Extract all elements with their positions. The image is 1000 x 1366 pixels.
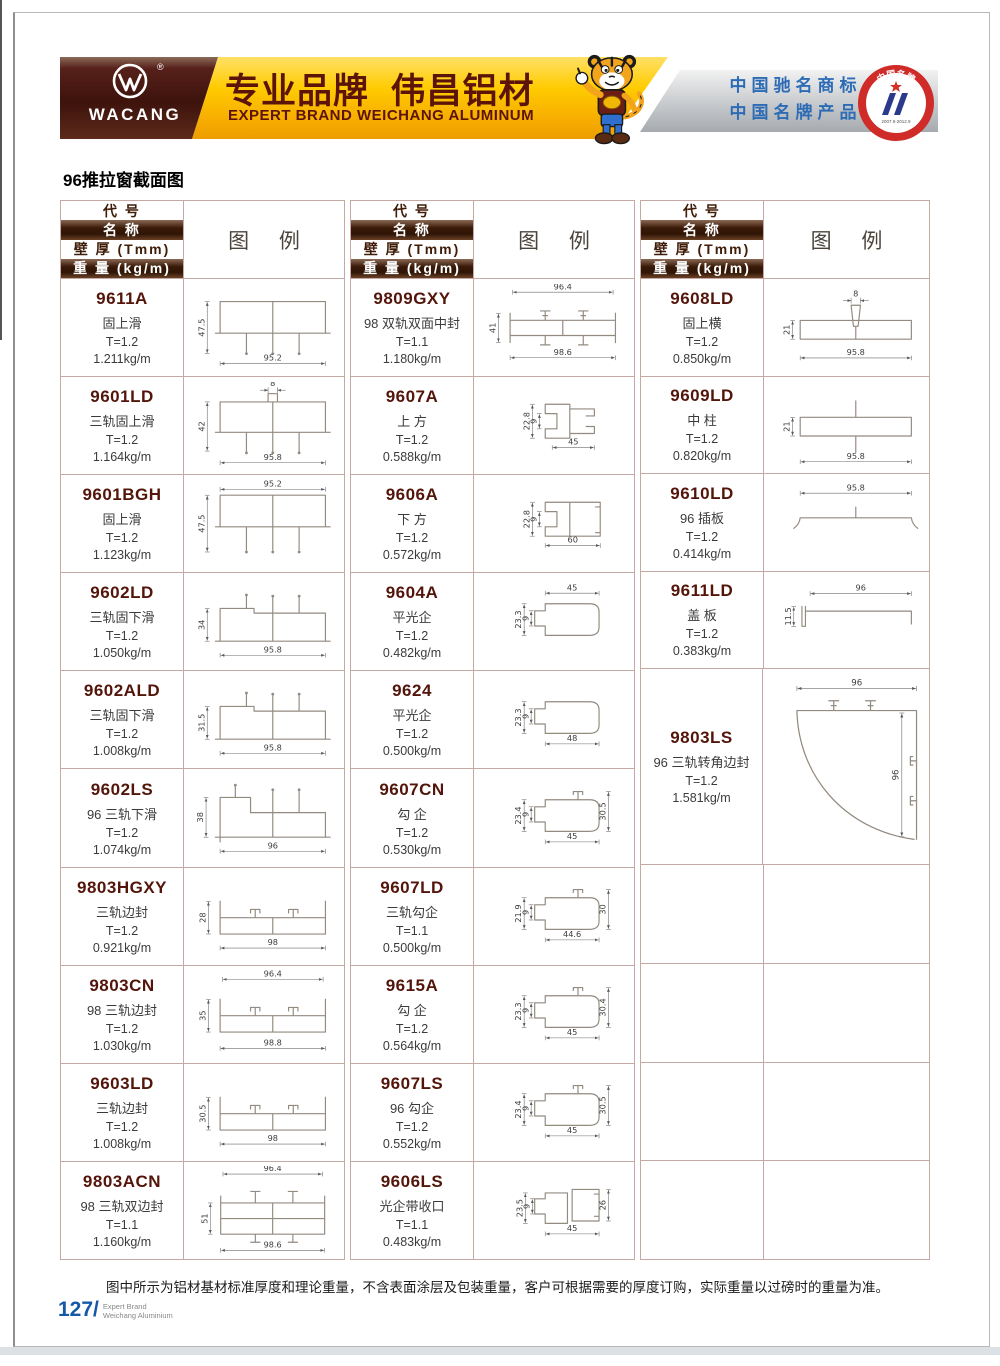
profile-thickness: T=1.2 (396, 1120, 428, 1134)
profile-diagram: 3896 (184, 769, 344, 866)
profile-diagram: 84295.8 (184, 377, 344, 474)
profile-name: 98 三轨双边封 (80, 1196, 163, 1215)
section-title: 96推拉窗截面图 (63, 166, 184, 191)
profile-label-cell: 9602LS96 三轨下滑T=1.21.074kg/m (61, 769, 184, 866)
svg-text:98: 98 (268, 937, 278, 947)
header-weight: 重 量 (kg/m) (641, 259, 763, 278)
table-header: 代 号名 称壁 厚 (Tmm)重 量 (kg/m)图 例 (61, 201, 344, 278)
profile-label-cell: 9615A勾 企T=1.20.564kg/m (351, 966, 474, 1063)
profile-diagram: 3495.8 (184, 573, 344, 670)
svg-text:21: 21 (781, 325, 791, 335)
svg-text:28: 28 (197, 913, 207, 923)
profile-diagram: 96.45198.6 (184, 1162, 344, 1259)
profile-thickness: T=1.2 (106, 1120, 138, 1134)
profile-label-cell: 9803LS96 三轨转角边封T=1.21.581kg/m (641, 669, 763, 864)
empty-row (641, 1160, 929, 1259)
profile-name: 98 双轨双面中封 (364, 313, 460, 332)
profile-name: 中 柱 (687, 410, 717, 429)
profile-name: 勾 企 (397, 804, 427, 823)
profile-code: 9607CN (379, 780, 444, 800)
profile-row-9607LD: 9607LD三轨勾企T=1.10.500kg/m21.993044.6 (351, 867, 634, 965)
svg-text:9: 9 (528, 418, 538, 423)
profile-row-9809GXY: 9809GXY98 双轨双面中封T=1.11.180kg/m96.44198.6 (351, 278, 634, 376)
svg-text:96: 96 (851, 678, 862, 688)
profile-weight: 1.581kg/m (672, 791, 730, 805)
profile-weight: 0.414kg/m (673, 547, 731, 561)
profile-diagram: 23.4930.545 (474, 1064, 634, 1161)
svg-text:11.5: 11.5 (782, 607, 792, 625)
profile-table-1: 代 号名 称壁 厚 (Tmm)重 量 (kg/m)图 例9611A固上滑T=1.… (60, 200, 345, 1260)
profile-row-9602LD: 9602LD三轨固下滑T=1.21.050kg/m3495.8 (61, 572, 344, 670)
svg-text:98.8: 98.8 (264, 1038, 282, 1048)
banner-subtitle: EXPERT BRAND WEICHANG ALUMINUM (228, 107, 534, 124)
svg-text:95.8: 95.8 (264, 742, 282, 752)
profile-diagram: 2898 (184, 868, 344, 965)
profile-diagram: 82195.8 (764, 279, 929, 376)
profile-name: 固上滑 (102, 509, 141, 528)
svg-text:31.5: 31.5 (196, 714, 206, 732)
profile-row-9602ALD: 9602ALD三轨固下滑T=1.21.008kg/m31.595.8 (61, 670, 344, 768)
profile-table-3: 代 号名 称壁 厚 (Tmm)重 量 (kg/m)图 例9608LD固上横T=1… (640, 200, 930, 1260)
header-banner: ® WACANG 专业品牌 伟昌铝材 EXPERT BRAND WEICHANG… (60, 57, 940, 139)
empty-row (641, 1062, 929, 1161)
profile-weight: 0.921kg/m (93, 941, 151, 955)
header-code: 代 号 (641, 201, 763, 220)
svg-text:96: 96 (855, 582, 865, 592)
profile-diagram: 95.8 (764, 474, 929, 571)
profile-code: 9601BGH (82, 485, 161, 505)
profile-thickness: T=1.2 (106, 433, 138, 447)
profile-weight: 1.164kg/m (93, 450, 151, 464)
header-label-stack: 代 号名 称壁 厚 (Tmm)重 量 (kg/m) (641, 201, 764, 278)
svg-text:96: 96 (268, 840, 278, 850)
profile-diagram: 95.247.5 (184, 475, 344, 572)
profile-label-cell (641, 1161, 764, 1259)
profile-diagram: 23.4930.545 (474, 769, 634, 866)
svg-text:95.8: 95.8 (846, 451, 864, 461)
profile-row-9606LS: 9606LS光企带收口T=1.10.483kg/m23.592645 (351, 1161, 634, 1259)
svg-text:98: 98 (268, 1134, 278, 1144)
profile-code: 9607LS (381, 1074, 444, 1094)
profile-code: 9803ACN (83, 1172, 161, 1192)
profile-thickness: T=1.1 (106, 1218, 138, 1232)
profile-code: 9615A (386, 976, 439, 996)
profile-weight: 0.483kg/m (383, 1235, 441, 1249)
badge-dates: 2007.9-2012.9 (881, 119, 911, 124)
profile-diagram: 23.3930.445 (474, 966, 634, 1063)
svg-text:30: 30 (597, 904, 607, 914)
profile-thickness: T=1.2 (396, 727, 428, 741)
profile-name: 三轨边封 (96, 902, 148, 921)
profile-label-cell: 9604A平光企T=1.20.482kg/m (351, 573, 474, 670)
profile-row-9611A: 9611A固上滑T=1.21.211kg/m47.595.2 (61, 278, 344, 376)
profile-diagram: 96.44198.6 (474, 279, 634, 376)
profile-name: 光企带收口 (379, 1196, 444, 1215)
profile-weight: 1.008kg/m (93, 1137, 151, 1151)
profile-thickness: T=1.2 (396, 826, 428, 840)
profile-row-9609LD: 9609LD中 柱T=1.20.820kg/m2195.8 (641, 376, 929, 474)
profile-code: 9606A (386, 485, 439, 505)
profile-thickness: T=1.2 (106, 629, 138, 643)
profile-label-cell: 9601BGH固上滑T=1.21.123kg/m (61, 475, 184, 572)
profile-code: 9610LD (670, 484, 733, 504)
profile-code: 9611LD (671, 581, 734, 601)
profile-row-9803LS: 9803LS96 三轨转角边封T=1.21.581kg/m9696 (641, 668, 929, 864)
profile-row-9607A: 9607A上 方T=1.20.588kg/m22.8945 (351, 376, 634, 474)
svg-text:95.2: 95.2 (264, 480, 282, 488)
profile-thickness: T=1.2 (396, 629, 428, 643)
profile-label-cell: 9601LD三轨固上滑T=1.21.164kg/m (61, 377, 184, 474)
svg-text:9: 9 (520, 1008, 530, 1013)
profile-name: 固上横 (682, 313, 721, 332)
profile-diagram: 2195.8 (764, 377, 929, 474)
svg-text:95.2: 95.2 (264, 352, 282, 362)
svg-text:96: 96 (892, 769, 902, 780)
profile-weight: 0.383kg/m (673, 644, 731, 658)
profile-thickness: T=1.2 (106, 924, 138, 938)
profile-label-cell: 9608LD固上横T=1.20.850kg/m (641, 279, 764, 376)
header-code: 代 号 (61, 201, 183, 220)
profile-weight: 0.500kg/m (383, 941, 441, 955)
svg-text:96.4: 96.4 (264, 1166, 282, 1173)
profile-label-cell: 9602ALD三轨固下滑T=1.21.008kg/m (61, 671, 184, 768)
svg-text:95.8: 95.8 (846, 347, 864, 357)
profile-name: 三轨勾企 (386, 902, 438, 921)
profile-diagram: 23.3948 (474, 671, 634, 768)
profile-thickness: T=1.2 (106, 335, 138, 349)
svg-text:47.5: 47.5 (196, 318, 206, 336)
profile-diagram: 22.8945 (474, 377, 634, 474)
profile-diagram: 22.8960 (474, 475, 634, 572)
profile-row-9607LS: 9607LS96 勾企T=1.20.552kg/m23.4930.545 (351, 1063, 634, 1161)
page-meta-line1: Expert Brand (103, 1302, 147, 1311)
profile-weight: 1.030kg/m (93, 1039, 151, 1053)
profile-row-9607CN: 9607CN勾 企T=1.20.530kg/m23.4930.545 (351, 768, 634, 866)
profile-label-cell: 9624平光企T=1.20.500kg/m (351, 671, 474, 768)
profile-code: 9603LD (90, 1074, 153, 1094)
profile-weight: 1.180kg/m (383, 352, 441, 366)
profile-name: 96 三轨下滑 (87, 804, 157, 823)
profile-weight: 1.074kg/m (93, 843, 151, 857)
profile-code: 9803CN (89, 976, 154, 996)
profile-thickness: T=1.2 (686, 432, 718, 446)
header-name: 名 称 (641, 220, 763, 239)
svg-text:98.6: 98.6 (554, 346, 572, 356)
profile-thickness: T=1.2 (686, 335, 718, 349)
profile-label-cell (641, 865, 764, 963)
profile-row-9601BGH: 9601BGH固上滑T=1.21.123kg/m95.247.5 (61, 474, 344, 572)
profile-code: 9602LD (90, 583, 153, 603)
header-legend: 图 例 (184, 201, 344, 278)
profile-diagram: 4523.39 (474, 573, 634, 670)
svg-text:96.4: 96.4 (264, 970, 282, 978)
svg-text:9: 9 (521, 1204, 531, 1209)
profile-label-cell: 9803ACN98 三轨双边封T=1.11.160kg/m (61, 1162, 184, 1259)
profile-weight: 0.564kg/m (383, 1039, 441, 1053)
profile-weight: 1.050kg/m (93, 646, 151, 660)
page-number: 127/ (58, 1300, 99, 1320)
profile-thickness: T=1.2 (106, 727, 138, 741)
profile-label-cell: 9803CN98 三轨边封T=1.21.030kg/m (61, 966, 184, 1063)
profile-label-cell: 9611LD盖 板T=1.20.383kg/m (641, 572, 764, 669)
scan-edge (0, 0, 2, 340)
profile-row-9615A: 9615A勾 企T=1.20.564kg/m23.3930.445 (351, 965, 634, 1063)
profile-row-9602LS: 9602LS96 三轨下滑T=1.21.074kg/m3896 (61, 768, 344, 866)
svg-text:98.6: 98.6 (264, 1240, 282, 1250)
header-legend: 图 例 (764, 201, 929, 278)
header-code: 代 号 (351, 201, 473, 220)
registered-mark: ® (157, 62, 164, 72)
svg-text:21: 21 (781, 421, 791, 431)
profile-thickness: T=1.1 (396, 1218, 428, 1232)
top-brand-badge-icon: 中国名牌 CHINA TOP BRAND 2007.9-2012.9 (856, 63, 936, 143)
profile-label-cell: 9611A固上滑T=1.21.211kg/m (61, 279, 184, 376)
profile-diagram: 96.43598.8 (184, 966, 344, 1063)
profile-code: 9624 (392, 681, 432, 701)
svg-text:45: 45 (568, 436, 578, 446)
profile-diagram: 21.993044.6 (474, 868, 634, 965)
profile-diagram: 9611.5 (764, 572, 929, 669)
header-name: 名 称 (351, 220, 473, 239)
svg-text:30.5: 30.5 (597, 1097, 607, 1115)
profile-weight: 1.160kg/m (93, 1235, 151, 1249)
profile-diagram: 9696 (763, 669, 929, 864)
profile-diagram (764, 1161, 929, 1259)
profile-weight: 1.008kg/m (93, 744, 151, 758)
header-thickness: 壁 厚 (Tmm) (351, 240, 473, 259)
header-name: 名 称 (61, 220, 183, 239)
profile-code: 9606LS (381, 1172, 444, 1192)
profile-name: 三轨固下滑 (89, 705, 154, 724)
profile-code: 9607A (386, 387, 439, 407)
profile-label-cell: 9607A上 方T=1.20.588kg/m (351, 377, 474, 474)
profile-thickness: T=1.1 (396, 335, 428, 349)
wacang-logo-icon (106, 60, 154, 104)
svg-text:96.4: 96.4 (554, 284, 572, 291)
profile-name: 98 三轨边封 (87, 1000, 157, 1019)
profile-code: 9602LS (91, 780, 154, 800)
footer-note: 图中所示为铝材基材标准厚度和理论重量，不含表面涂层及包装重量，客户可根据需要的厚… (60, 1276, 935, 1296)
profile-diagram (764, 964, 929, 1062)
profile-weight: 0.820kg/m (673, 449, 731, 463)
profile-weight: 0.500kg/m (383, 744, 441, 758)
profile-diagram: 47.595.2 (184, 279, 344, 376)
profile-label-cell: 9606A下 方T=1.20.572kg/m (351, 475, 474, 572)
profile-diagram: 30.598 (184, 1064, 344, 1161)
profile-label-cell: 9606LS光企带收口T=1.10.483kg/m (351, 1162, 474, 1259)
svg-text:26: 26 (597, 1200, 607, 1210)
svg-text:8: 8 (853, 289, 858, 299)
svg-text:45: 45 (567, 1027, 577, 1037)
svg-text:38: 38 (195, 812, 205, 822)
profile-code: 9601LD (90, 387, 153, 407)
profile-label-cell: 9607CN勾 企T=1.20.530kg/m (351, 769, 474, 866)
svg-text:9: 9 (520, 616, 530, 621)
profile-thickness: T=1.2 (106, 1022, 138, 1036)
header-thickness: 壁 厚 (Tmm) (61, 240, 183, 259)
svg-text:51: 51 (199, 1214, 209, 1224)
profile-row-9601LD: 9601LD三轨固上滑T=1.21.164kg/m84295.8 (61, 376, 344, 474)
header-thickness: 壁 厚 (Tmm) (641, 240, 763, 259)
svg-text:42: 42 (196, 421, 206, 431)
bottom-band (0, 1347, 1000, 1355)
header-weight: 重 量 (kg/m) (351, 259, 473, 278)
profile-name: 96 三轨转角边封 (653, 752, 749, 771)
svg-text:48: 48 (567, 733, 577, 743)
profile-name: 96 勾企 (390, 1098, 434, 1117)
profile-diagram: 31.595.8 (184, 671, 344, 768)
profile-name: 平光企 (392, 607, 431, 626)
svg-text:34: 34 (196, 620, 206, 630)
svg-text:95.8: 95.8 (846, 483, 864, 493)
profile-name: 上 方 (397, 411, 427, 430)
profile-code: 9803LS (670, 728, 733, 748)
profile-code: 9608LD (670, 289, 733, 309)
profile-code: 9604A (386, 583, 439, 603)
profile-diagram (764, 1063, 929, 1161)
profile-name: 固上滑 (102, 313, 141, 332)
profile-label-cell (641, 964, 764, 1062)
profile-name: 勾 企 (397, 1000, 427, 1019)
profile-row-9803ACN: 9803ACN98 三轨双边封T=1.11.160kg/m96.45198.6 (61, 1161, 344, 1259)
profile-row-9603LD: 9603LD三轨边封T=1.21.008kg/m30.598 (61, 1063, 344, 1161)
svg-text:41: 41 (487, 322, 497, 332)
table-header: 代 号名 称壁 厚 (Tmm)重 量 (kg/m)图 例 (351, 201, 634, 278)
profile-name: 下 方 (397, 509, 427, 528)
profile-weight: 0.482kg/m (383, 646, 441, 660)
profile-label-cell: 9602LD三轨固下滑T=1.21.050kg/m (61, 573, 184, 670)
profile-name: 三轨边封 (96, 1098, 148, 1117)
profile-name: 平光企 (392, 705, 431, 724)
svg-text:45: 45 (567, 1125, 577, 1135)
profile-row-9610LD: 9610LD96 插板T=1.20.414kg/m95.8 (641, 473, 929, 571)
profile-code: 9602ALD (84, 681, 160, 701)
profile-row-9803HGXY: 9803HGXY三轨边封T=1.20.921kg/m2898 (61, 867, 344, 965)
profile-label-cell (641, 1063, 764, 1161)
svg-text:9: 9 (520, 1106, 530, 1111)
svg-text:30.5: 30.5 (597, 802, 607, 820)
profile-code: 9809GXY (373, 289, 450, 309)
header-label-stack: 代 号名 称壁 厚 (Tmm)重 量 (kg/m) (351, 201, 474, 278)
profile-label-cell: 9803HGXY三轨边封T=1.20.921kg/m (61, 868, 184, 965)
profile-row-9611LD: 9611LD盖 板T=1.20.383kg/m9611.5 (641, 571, 929, 669)
svg-text:9: 9 (520, 714, 530, 719)
header-label-stack: 代 号名 称壁 厚 (Tmm)重 量 (kg/m) (61, 201, 184, 278)
svg-text:9: 9 (520, 812, 530, 817)
profile-name: 三轨固上滑 (89, 411, 154, 430)
profile-row-9606A: 9606A下 方T=1.20.572kg/m22.8960 (351, 474, 634, 572)
profile-weight: 0.552kg/m (383, 1137, 441, 1151)
tiger-mascot-icon (565, 53, 653, 145)
profile-name: 三轨固下滑 (89, 607, 154, 626)
profile-weight: 1.211kg/m (93, 352, 150, 366)
profile-code: 9803HGXY (77, 878, 167, 898)
profile-code: 9607LD (380, 878, 443, 898)
profile-label-cell: 9609LD中 柱T=1.20.820kg/m (641, 377, 764, 474)
profile-weight: 0.588kg/m (383, 450, 441, 464)
svg-text:45: 45 (567, 1223, 577, 1233)
svg-text:45: 45 (567, 582, 577, 592)
profile-label-cell: 9607LS96 勾企T=1.20.552kg/m (351, 1064, 474, 1161)
svg-text:30.4: 30.4 (597, 999, 607, 1017)
svg-text:9: 9 (528, 516, 538, 521)
profile-weight: 0.850kg/m (673, 352, 731, 366)
profile-name: 盖 板 (687, 605, 717, 624)
svg-text:95.8: 95.8 (264, 452, 282, 462)
profile-thickness: T=1.2 (685, 774, 717, 788)
header-weight: 重 量 (kg/m) (61, 259, 183, 278)
profile-thickness: T=1.2 (106, 826, 138, 840)
profile-label-cell: 9603LD三轨边封T=1.21.008kg/m (61, 1064, 184, 1161)
empty-row (641, 864, 929, 963)
profile-code: 9611A (96, 289, 148, 309)
profile-weight: 0.572kg/m (383, 548, 441, 562)
profile-thickness: T=1.2 (106, 531, 138, 545)
table-header: 代 号名 称壁 厚 (Tmm)重 量 (kg/m)图 例 (641, 201, 929, 278)
profile-name: 96 插板 (680, 508, 724, 527)
svg-text:8: 8 (270, 382, 275, 388)
profile-code: 9609LD (670, 386, 733, 406)
profile-row-9604A: 9604A平光企T=1.20.482kg/m4523.39 (351, 572, 634, 670)
profile-row-9624: 9624平光企T=1.20.500kg/m23.3948 (351, 670, 634, 768)
profile-thickness: T=1.2 (396, 1022, 428, 1036)
logo-text: WACANG (60, 105, 210, 125)
page-meta: Expert Brand Weichang Aluminium (103, 1300, 173, 1320)
profile-weight: 0.530kg/m (383, 843, 441, 857)
svg-text:35: 35 (197, 1011, 207, 1021)
profile-row-9608LD: 9608LD固上横T=1.20.850kg/m82195.8 (641, 278, 929, 376)
profile-label-cell: 9610LD96 插板T=1.20.414kg/m (641, 474, 764, 571)
profile-thickness: T=1.2 (396, 433, 428, 447)
svg-text:95.8: 95.8 (264, 644, 282, 654)
empty-row (641, 963, 929, 1062)
svg-text:44.6: 44.6 (563, 929, 581, 939)
profile-diagram (764, 865, 929, 963)
profile-label-cell: 9607LD三轨勾企T=1.10.500kg/m (351, 868, 474, 965)
profile-thickness: T=1.2 (686, 627, 718, 641)
profile-table-2: 代 号名 称壁 厚 (Tmm)重 量 (kg/m)图 例9809GXY98 双轨… (350, 200, 635, 1260)
page-number-block: 127/ Expert Brand Weichang Aluminium (58, 1300, 173, 1320)
header-legend: 图 例 (474, 201, 634, 278)
profile-label-cell: 9809GXY98 双轨双面中封T=1.11.180kg/m (351, 279, 474, 376)
profile-thickness: T=1.2 (396, 531, 428, 545)
svg-text:60: 60 (568, 534, 578, 544)
profile-diagram: 23.592645 (474, 1162, 634, 1259)
page-meta-line2: Weichang Aluminium (103, 1311, 173, 1320)
profile-thickness: T=1.2 (686, 530, 718, 544)
svg-text:47.5: 47.5 (196, 514, 206, 532)
profile-row-9803CN: 9803CN98 三轨边封T=1.21.030kg/m96.43598.8 (61, 965, 344, 1063)
svg-text:30.5: 30.5 (197, 1105, 207, 1123)
profile-weight: 1.123kg/m (93, 548, 151, 562)
profile-thickness: T=1.1 (396, 924, 428, 938)
svg-text:45: 45 (567, 831, 577, 841)
svg-text:9: 9 (520, 910, 530, 915)
